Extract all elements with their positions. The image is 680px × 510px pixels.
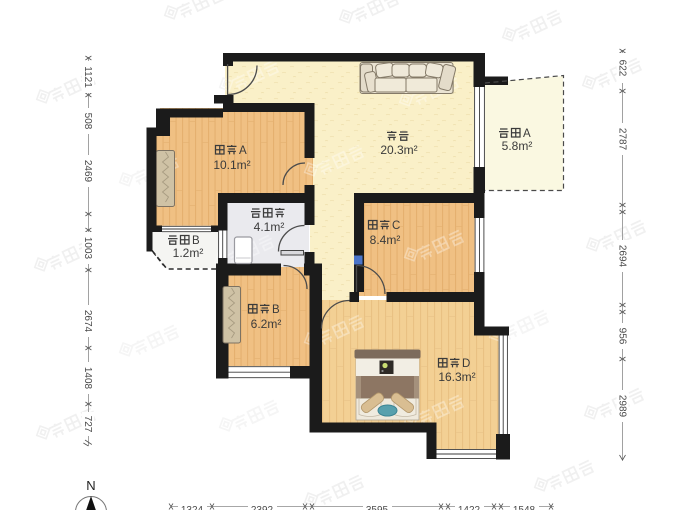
svg-text:508: 508 bbox=[82, 113, 93, 130]
svg-text:1003: 1003 bbox=[82, 237, 93, 260]
svg-text:3595: 3595 bbox=[366, 505, 389, 510]
svg-text:8.4m²: 8.4m² bbox=[370, 233, 401, 247]
svg-text:A: A bbox=[239, 145, 247, 157]
svg-text:2469: 2469 bbox=[82, 160, 93, 183]
svg-text:622: 622 bbox=[617, 60, 628, 77]
svg-text:2787: 2787 bbox=[617, 128, 628, 151]
svg-text:4.1m²: 4.1m² bbox=[254, 220, 285, 234]
svg-text:10.1m²: 10.1m² bbox=[213, 158, 250, 172]
svg-text:1324: 1324 bbox=[181, 505, 204, 510]
svg-text:1408: 1408 bbox=[82, 367, 93, 390]
svg-text:N: N bbox=[86, 478, 95, 493]
svg-text:1422: 1422 bbox=[458, 505, 481, 510]
svg-text:D: D bbox=[462, 358, 470, 370]
svg-text:B: B bbox=[272, 304, 280, 316]
svg-text:1548: 1548 bbox=[513, 505, 536, 510]
svg-text:5.8m²: 5.8m² bbox=[502, 139, 533, 153]
svg-text:1.2m²: 1.2m² bbox=[173, 246, 204, 260]
svg-text:956: 956 bbox=[617, 328, 628, 345]
svg-text:2392: 2392 bbox=[251, 505, 274, 510]
svg-text:727: 727 bbox=[82, 416, 93, 433]
svg-text:2989: 2989 bbox=[617, 395, 628, 418]
svg-text:2694: 2694 bbox=[617, 245, 628, 268]
svg-text:6.2m²: 6.2m² bbox=[251, 317, 282, 331]
svg-text:1121: 1121 bbox=[82, 66, 93, 88]
svg-text:C: C bbox=[392, 220, 400, 232]
svg-text:2674: 2674 bbox=[82, 310, 93, 333]
svg-text:20.3m²: 20.3m² bbox=[380, 143, 417, 157]
svg-text:16.3m²: 16.3m² bbox=[438, 370, 475, 384]
